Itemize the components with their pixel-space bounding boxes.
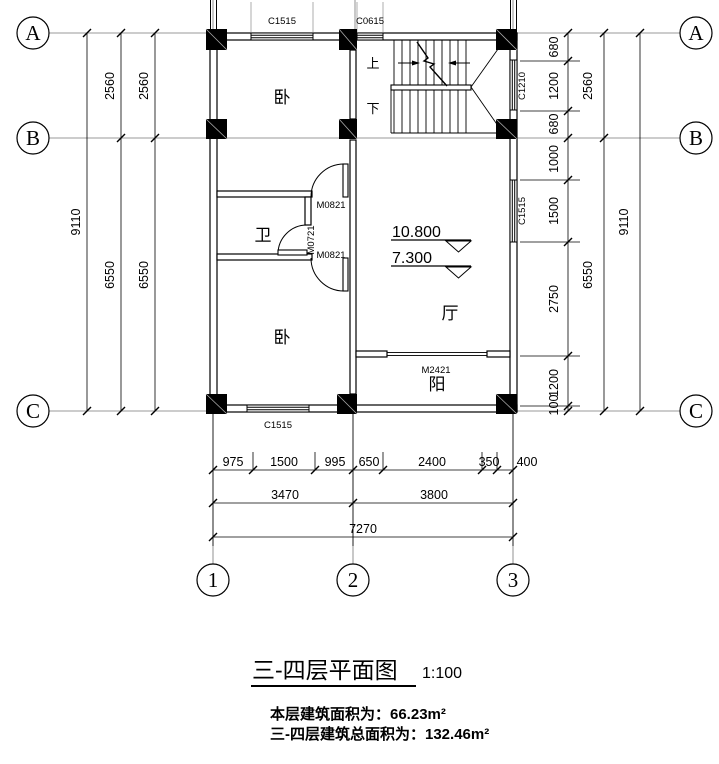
staircase: [391, 40, 503, 133]
dim-right-1200a: 1200: [547, 72, 561, 100]
window-bedroom-top: [251, 33, 313, 40]
door-tag-bedroom-top: M0821: [316, 200, 345, 211]
stair-landing-diagonal-2: [471, 87, 503, 133]
window-tag-hall-right: C1515: [517, 197, 528, 225]
dim-left-ab-1: 2560: [103, 72, 117, 100]
title-block: 三-四层平面图 1:100 本层建筑面积为：66.23m² 三-四层建筑总面积为…: [251, 657, 489, 743]
dim-right-ab: 2560: [581, 72, 595, 100]
grid-bubble-A-left: A: [25, 21, 41, 45]
level-lower-value: 7.300: [392, 250, 432, 267]
door-bedroom-top: [311, 164, 348, 197]
grid-bubble-B-right: B: [689, 126, 703, 150]
door-bathroom: [278, 225, 307, 255]
room-label-bathroom: 卫: [255, 226, 272, 245]
door-tag-balcony: M2421: [421, 365, 450, 376]
room-label-bedroom-bottom: 卧: [274, 328, 291, 347]
door-tag-bathroom: M0721: [306, 225, 317, 254]
dim-right-100: 100: [547, 395, 561, 416]
window-tag-stair-right: C1210: [517, 72, 528, 100]
dim-right-1500: 1500: [547, 197, 561, 225]
grid-bubble-C-left: C: [26, 399, 40, 423]
grid-bubble-1: 1: [208, 568, 219, 592]
drawing-title: 三-四层平面图: [252, 657, 398, 683]
stair-break-line: [417, 42, 447, 86]
dim-right-1000: 1000: [547, 145, 561, 173]
floor-plan-page: 上 下 10.800 7.300 卧 卫 卧 厅 阳 C1515 C0615 C…: [0, 0, 719, 764]
stair-handrail: [391, 85, 471, 90]
dim-bottom-2400: 2400: [418, 455, 446, 469]
dim-bottom-995: 995: [325, 455, 346, 469]
door-bedroom-bottom: [311, 258, 348, 291]
dim-right-2750: 2750: [547, 285, 561, 313]
stair-up-label: 上: [366, 56, 379, 71]
dim-left-bc-2: 6550: [137, 261, 151, 289]
room-label-balcony: 阳: [429, 375, 446, 394]
dim-bottom-3470: 3470: [271, 488, 299, 502]
dim-right-bc: 6550: [581, 261, 595, 289]
grid-bubble-2: 2: [348, 568, 359, 592]
window-bedroom-bottom: [247, 405, 309, 412]
dim-left-total: 9110: [69, 209, 83, 236]
dim-bottom-3800: 3800: [420, 488, 448, 502]
note-total-area: 三-四层建筑总面积为：132.46m²: [270, 725, 489, 743]
dim-left-ab-2: 2560: [137, 72, 151, 100]
window-tag-bedroom-top: C1515: [268, 16, 296, 27]
dim-bottom-400: 400: [517, 455, 538, 469]
floor-plan-drawing: 上 下 10.800 7.300 卧 卫 卧 厅 阳 C1515 C0615 C…: [0, 0, 719, 764]
dim-bottom-350: 350: [479, 455, 500, 469]
window-stair-top: [357, 33, 383, 40]
note-floor-area: 本层建筑面积为：66.23m²: [270, 705, 446, 723]
level-upper-triangle: [446, 241, 471, 252]
grid-bubble-C-right: C: [689, 399, 703, 423]
dim-right-1200b: 1200: [547, 369, 561, 397]
stair-treads-lower: [394, 90, 466, 133]
dim-left-bc-1: 6550: [103, 261, 117, 289]
dim-bottom-975: 975: [223, 455, 244, 469]
dim-bottom-650: 650: [359, 455, 380, 469]
window-tag-bedroom-bottom: C1515: [264, 420, 292, 431]
window-tag-stair-top: C0615: [356, 16, 384, 27]
grid-bubble-3: 3: [508, 568, 519, 592]
level-lower-triangle: [446, 267, 471, 278]
dim-right-total: 9110: [617, 209, 631, 236]
dim-bottom-1500: 1500: [270, 455, 298, 469]
dim-bottom-total: 7270: [349, 522, 377, 536]
room-label-hall: 厅: [442, 304, 459, 323]
grid-bubble-B-left: B: [26, 126, 40, 150]
level-upper-value: 10.800: [392, 224, 441, 241]
level-marks: 10.800 7.300: [391, 224, 471, 278]
room-label-bedroom-top: 卧: [274, 88, 291, 107]
window-hall-right: [510, 180, 517, 242]
dim-right-680b: 680: [547, 114, 561, 135]
door-tag-bedroom-bottom: M0821: [316, 250, 345, 261]
window-stair-right: [510, 60, 517, 110]
drawing-scale: 1:100: [422, 665, 462, 682]
stair-landing-diagonal-1: [471, 42, 503, 87]
door-balcony-sill: [387, 353, 487, 356]
grid-bubble-A-right: A: [688, 21, 704, 45]
dim-right-680a: 680: [547, 37, 561, 58]
stair-down-label: 下: [366, 101, 379, 116]
